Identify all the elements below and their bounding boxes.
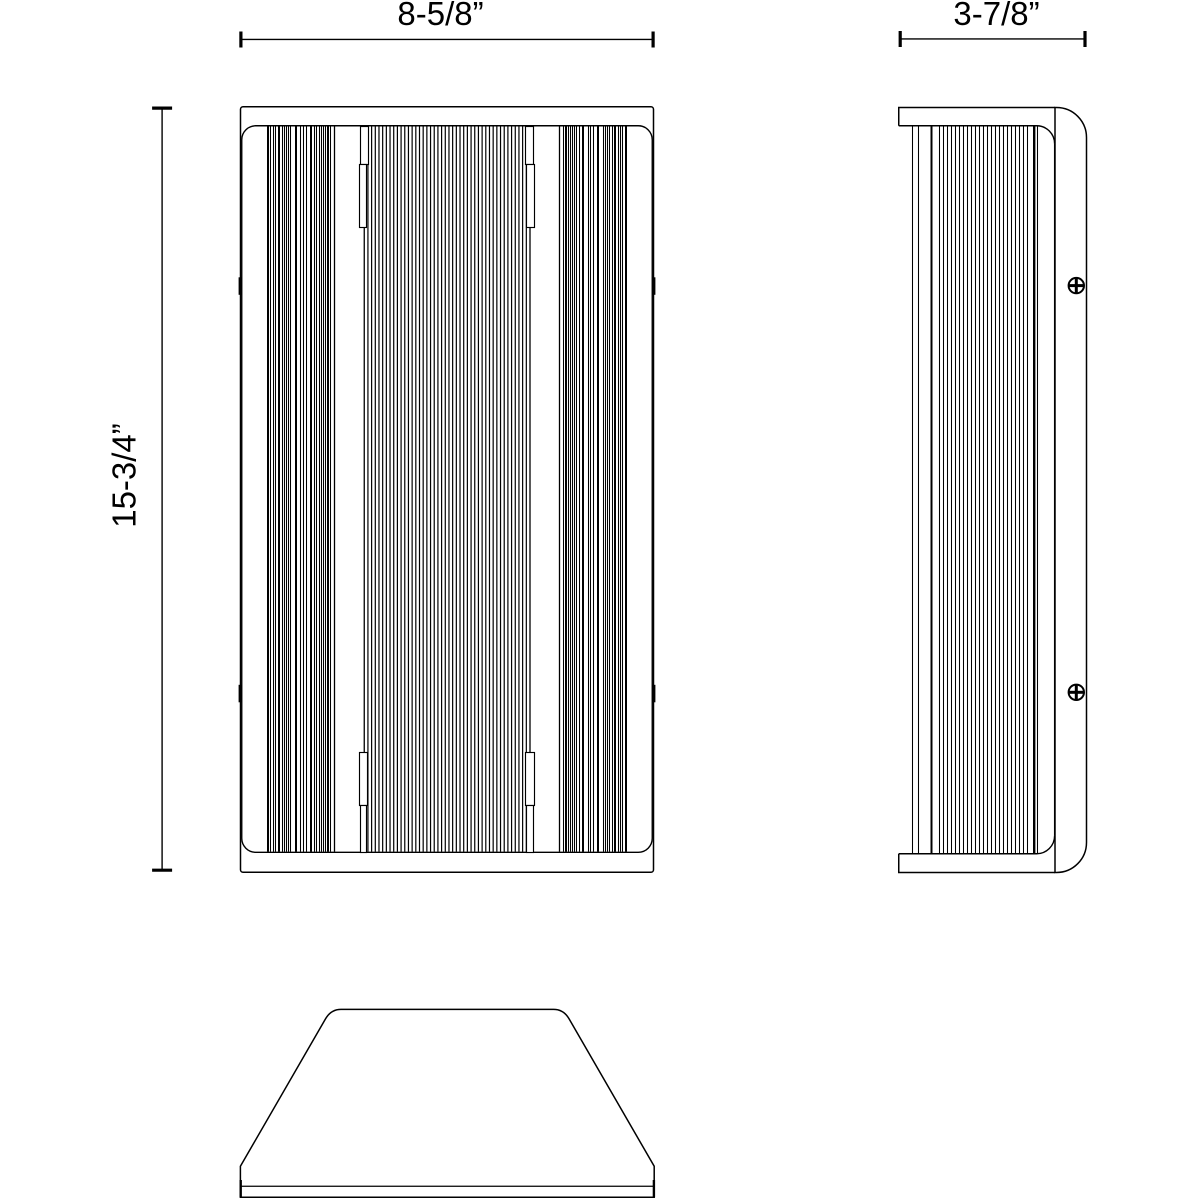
svg-text:3-7/8”: 3-7/8” (953, 0, 1039, 32)
svg-text:8-5/8”: 8-5/8” (397, 0, 483, 32)
svg-text:15-3/4”: 15-3/4” (106, 423, 143, 528)
